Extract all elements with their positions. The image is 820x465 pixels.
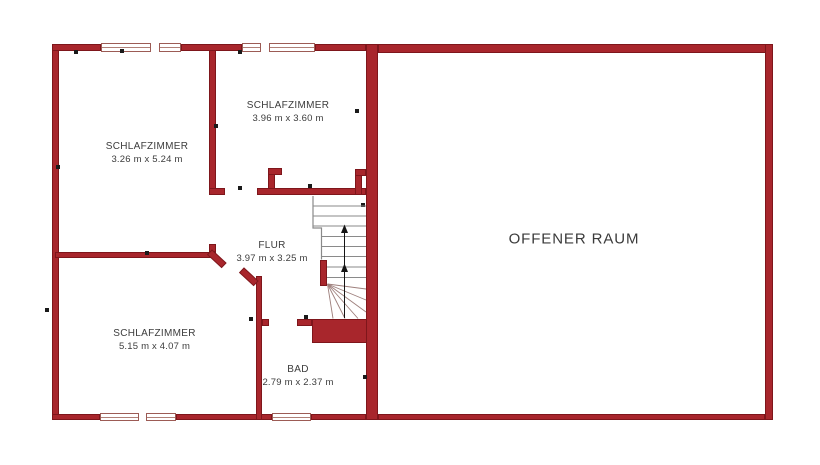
window-mullion [150, 43, 160, 52]
stairs-and-chamfers-svg [0, 0, 820, 465]
stair-up-arrow-icon [341, 264, 348, 273]
window-mullion [138, 413, 147, 422]
window-mullion [260, 43, 270, 52]
stair-winder-treads [328, 284, 367, 319]
chamfer-wall-upper [208, 250, 226, 268]
floor-plan: SCHLAFZIMMER 3.26 m x 5.24 m SCHLAFZIMME… [0, 0, 820, 465]
chamfer-wall-lower [240, 268, 258, 286]
